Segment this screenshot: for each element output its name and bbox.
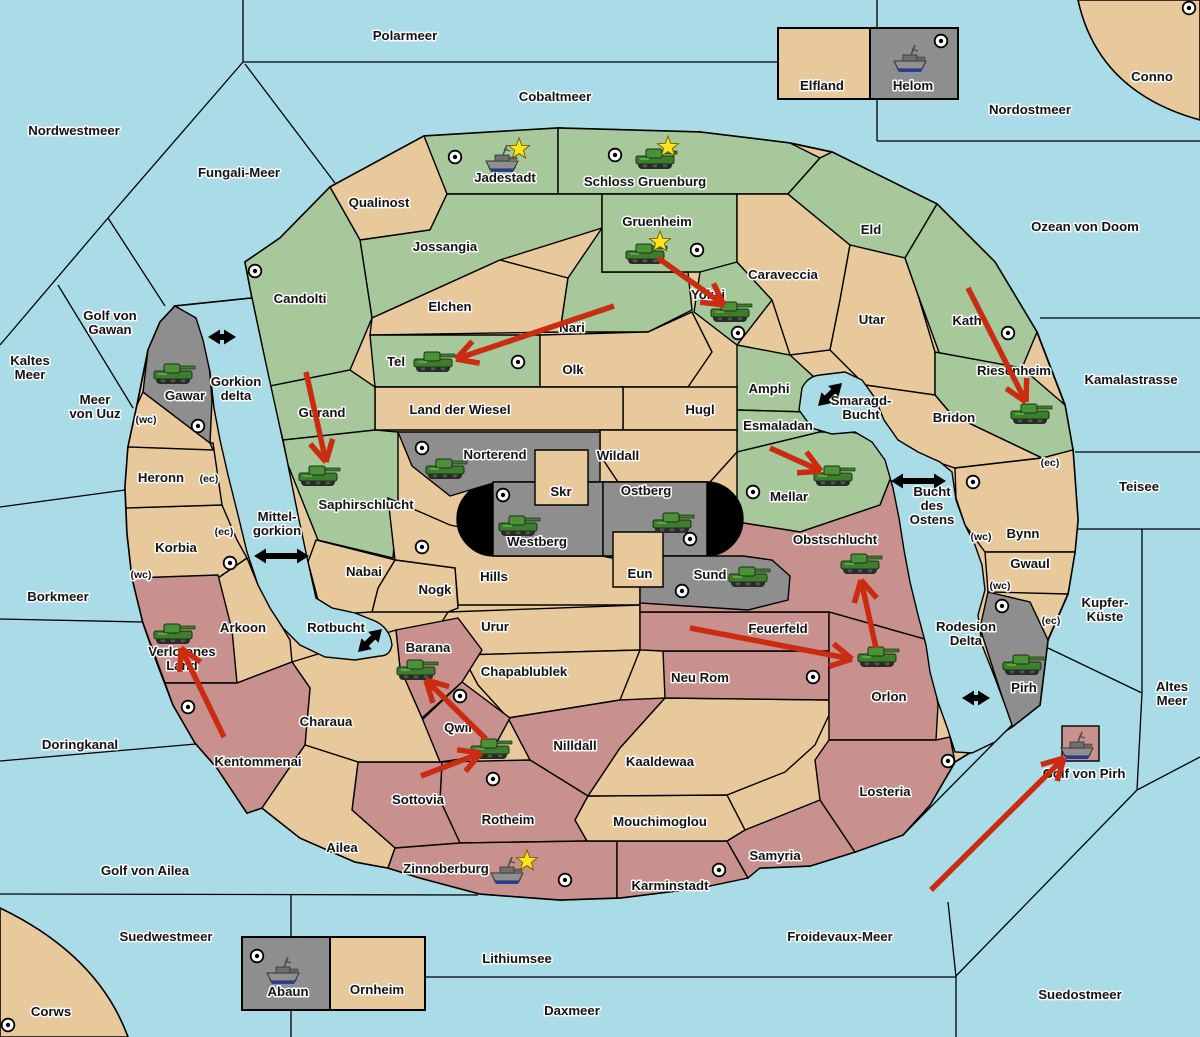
label-mellar: Mellar [770,489,808,504]
city-marker-icon [676,585,689,598]
label-obstschlucht: Obstschlucht [793,532,878,547]
label-chapablublek: Chapablublek [481,664,568,679]
region-gruenheim[interactable] [602,194,737,272]
city-marker-icon [713,864,726,877]
city-marker-icon [967,476,980,489]
label-daxmeer: Daxmeer [544,1003,600,1018]
city-marker-icon [416,541,429,554]
city-marker-icon [935,35,948,48]
city-marker-icon [609,149,622,162]
region-hugl[interactable] [623,387,737,430]
label-jossangia: Jossangia [413,239,478,254]
label-kupfer-k-ste: Kupfer-Küste [1082,595,1129,624]
label-orlon: Orlon [871,689,906,704]
label-nogk: Nogk [419,582,453,597]
label-lithiumsee: Lithiumsee [482,951,552,966]
city-marker-icon [807,671,820,684]
coast-marker--wc-: (wc) [136,414,157,426]
label-eld: Eld [861,222,882,237]
label-wildall: Wildall [597,448,639,463]
coast-marker--wc-: (wc) [990,580,1011,592]
label-conno: Conno [1131,69,1173,84]
label-tel: Tel [387,354,405,369]
label-ozean-von-doom: Ozean von Doom [1031,219,1139,234]
label-abaun: Abaun [267,984,308,999]
label-zinnoberburg: Zinnoberburg [403,861,489,876]
city-marker-icon [747,486,760,499]
label-korbia: Korbia [155,540,197,555]
label-rotbucht: Rotbucht [307,620,365,635]
label-fungali-meer: Fungali-Meer [198,165,280,180]
label-kaltes-meer: KaltesMeer [10,353,50,382]
label-amphi: Amphi [748,381,789,396]
city-marker-icon [1183,2,1196,15]
label-land-der-wiesel: Land der Wiesel [409,402,510,417]
label-ostberg: Ostberg [621,483,672,498]
label-mouchimoglou: Mouchimoglou [613,814,707,829]
label-jadestadt: Jadestadt [474,170,536,185]
coast-marker--ec-: (ec) [200,473,219,485]
label-corws: Corws [31,1004,71,1019]
city-marker-icon [512,356,525,369]
city-marker-icon [251,950,264,963]
label-esmaladan: Esmaladan [743,418,813,433]
label-gawar: Gawar [165,388,205,403]
city-marker-icon [497,489,510,502]
city-marker-icon [559,874,572,887]
label-kentommenai: Kentommenai [214,754,301,769]
label-barana: Barana [406,640,451,655]
label-rotheim: Rotheim [482,812,535,827]
city-marker-icon [2,1019,15,1032]
city-marker-icon [942,755,955,768]
label-arkoon: Arkoon [220,620,266,635]
label-schloss-gruenburg: Schloss Gruenburg [584,174,706,189]
label-feuerfeld: Feuerfeld [748,621,807,636]
label-elfland: Elfland [800,78,844,93]
city-marker-icon [684,533,697,546]
label-neu-rom: Neu Rom [671,670,729,685]
label-skr: Skr [550,484,571,499]
label-utar: Utar [859,312,885,327]
city-marker-icon [449,151,462,164]
label-bynn: Bynn [1007,526,1040,541]
city-marker-icon [416,442,429,455]
label-samyria: Samyria [749,848,801,863]
city-marker-icon [249,265,262,278]
label-gwaul: Gwaul [1010,556,1050,571]
coast-marker--ec-: (ec) [215,526,234,538]
city-marker-icon [192,420,205,433]
label-elchen: Elchen [428,299,471,314]
label-sund: Sund [694,567,727,582]
label-norterend: Norterend [463,447,526,462]
label-caraveccia: Caraveccia [748,267,818,282]
label-candolti: Candolti [274,291,327,306]
city-marker-icon [182,701,195,714]
city-marker-icon [487,773,500,786]
label-karminstadt: Karminstadt [632,878,710,893]
coast-marker--ec-: (ec) [1041,457,1060,469]
label-gruenheim: Gruenheim [622,214,692,229]
city-marker-icon [224,557,237,570]
label-teisee: Teisee [1119,479,1159,494]
label-qualinost: Qualinost [349,195,410,210]
label-heronn: Heronn [138,470,184,485]
city-marker-icon [1002,327,1015,340]
label-suedwestmeer: Suedwestmeer [119,929,212,944]
label-nilldall: Nilldall [553,738,596,753]
label-losteria: Losteria [859,784,911,799]
label-kaaldewaa: Kaaldewaa [626,754,695,769]
label-polarmeer: Polarmeer [373,28,438,43]
city-marker-icon [996,600,1009,613]
label-gurand: Gurand [299,405,346,420]
region-ornheim[interactable] [330,937,425,1010]
coast-marker--wc-: (wc) [131,569,152,581]
war-map-canvas: PolarmeerCobaltmeerNordostmeerNordwestme… [0,0,1200,1037]
label-borkmeer: Borkmeer [27,589,89,604]
label-golf-von-ailea: Golf von Ailea [101,863,190,878]
label-helom: Helom [893,78,933,93]
label-doringkanal: Doringkanal [42,737,118,752]
label-altes-meer: AltesMeer [1156,679,1188,708]
label-suedostmeer: Suedostmeer [1038,987,1122,1002]
label-kamalastrasse: Kamalastrasse [1084,372,1177,387]
label-hills: Hills [480,569,508,584]
game-map: PolarmeerCobaltmeerNordostmeerNordwestme… [0,0,1200,1037]
label-ornheim: Ornheim [350,982,404,997]
label-sottovia: Sottovia [392,792,445,807]
label-charaua: Charaua [300,714,353,729]
label-olk: Olk [562,362,584,377]
label-golf-von-gawan: Golf vonGawan [83,308,136,337]
label-urur: Urur [481,619,509,634]
label-eun: Eun [628,566,653,581]
label-hugl: Hugl [685,402,714,417]
label-cobaltmeer: Cobaltmeer [519,89,592,104]
label-nordostmeer: Nordostmeer [989,102,1071,117]
label-westberg: Westberg [507,534,567,549]
label-nordwestmeer: Nordwestmeer [28,123,120,138]
city-marker-icon [732,327,745,340]
label-bridon: Bridon [933,410,976,425]
label-saphirschlucht: Saphirschlucht [318,497,414,512]
city-marker-icon [454,690,467,703]
coast-marker--wc-: (wc) [971,531,992,543]
label-mittel-gorkion: Mittel-gorkion [253,509,301,538]
label-pirh: Pirh [1011,680,1037,695]
coast-marker--ec-: (ec) [1042,615,1061,627]
city-marker-icon [691,244,704,257]
label-nabai: Nabai [346,564,382,579]
label-ailea: Ailea [326,840,358,855]
label-froidevaux-meer: Froidevaux-Meer [787,929,893,944]
label-kath: Kath [952,313,981,328]
